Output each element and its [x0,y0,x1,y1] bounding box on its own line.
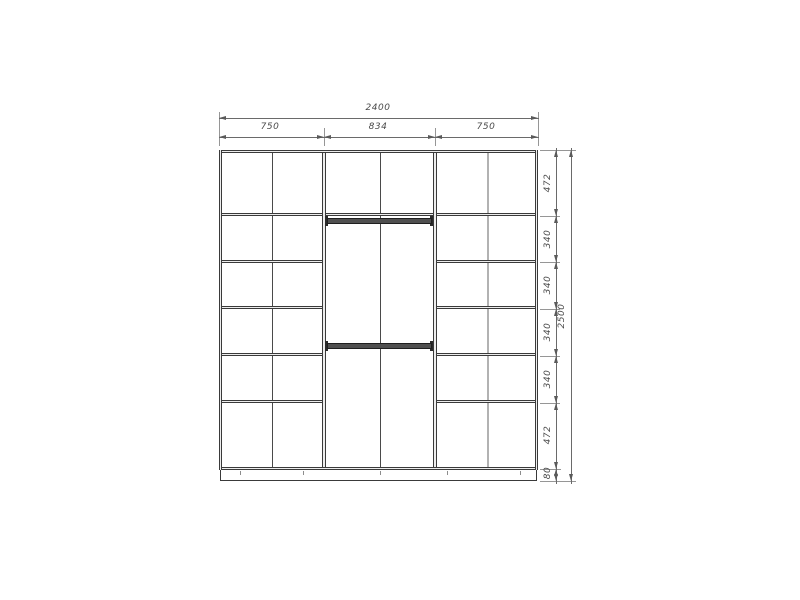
partition-panel-right [433,153,437,467]
partition-panel-left [322,153,326,467]
plinth-joint-mark [520,471,521,475]
dim-label-row-2: 340 [543,219,555,259]
dim-label-row-4: 340 [543,312,555,352]
dim-label-row-5: 340 [543,359,555,399]
shelf-right-level-4 [437,353,535,356]
plinth-joint-mark [240,471,241,475]
dimension-line-total-width [219,118,539,119]
shelf-left-level-4 [222,353,322,356]
arrow-icon [531,135,538,139]
shelf-left-level-3 [222,306,322,309]
arrow-icon [554,209,558,216]
arrow-icon [317,135,324,139]
dim-label-right-section: 750 [466,122,506,134]
plinth-joint-mark [303,471,304,475]
right-side-panel [535,150,538,470]
shelf-right-level-5 [437,400,535,403]
arrow-icon [428,135,435,139]
arrow-icon [554,403,558,410]
dim-label-plinth: 80 [543,453,555,493]
top-panel [219,150,538,153]
wardrobe-elevation-drawing: 2400 750 834 750 472 340 340 340 340 472… [0,0,800,600]
shelf-right-level-3 [437,306,535,309]
right-section-center-divider [487,153,489,467]
plinth-joint-mark [447,471,448,475]
shelf-right-level-2 [437,260,535,263]
plinth-panel [220,470,537,481]
middle-section-center-divider [380,153,381,467]
arrow-icon [569,474,573,481]
dim-label-left-section: 750 [250,122,290,134]
arrow-icon [324,135,331,139]
shelf-left-level-2 [222,260,322,263]
left-section-center-divider [272,153,273,467]
dim-label-middle-section: 834 [358,122,398,134]
left-side-panel [219,150,222,470]
dim-label-total-width: 2400 [358,103,398,115]
arrow-icon [219,135,226,139]
dim-label-total-height: 2500 [557,296,569,336]
dim-label-row-3: 340 [543,265,555,305]
hanging-rod-bottom [327,343,432,349]
dim-label-row-1: 472 [543,163,555,203]
arrow-icon [531,116,538,120]
dim-label-row-6: 472 [543,415,555,455]
dimension-line-total-height [571,148,572,484]
hanging-rod-top [327,218,432,224]
arrow-icon [554,150,558,157]
arrow-icon [569,150,573,157]
plinth-joint-mark [380,471,381,475]
dimension-line-section-widths [219,137,539,138]
arrow-icon [219,116,226,120]
shelf-level-1 [222,213,535,216]
arrow-icon [435,135,442,139]
shelf-left-level-5 [222,400,322,403]
